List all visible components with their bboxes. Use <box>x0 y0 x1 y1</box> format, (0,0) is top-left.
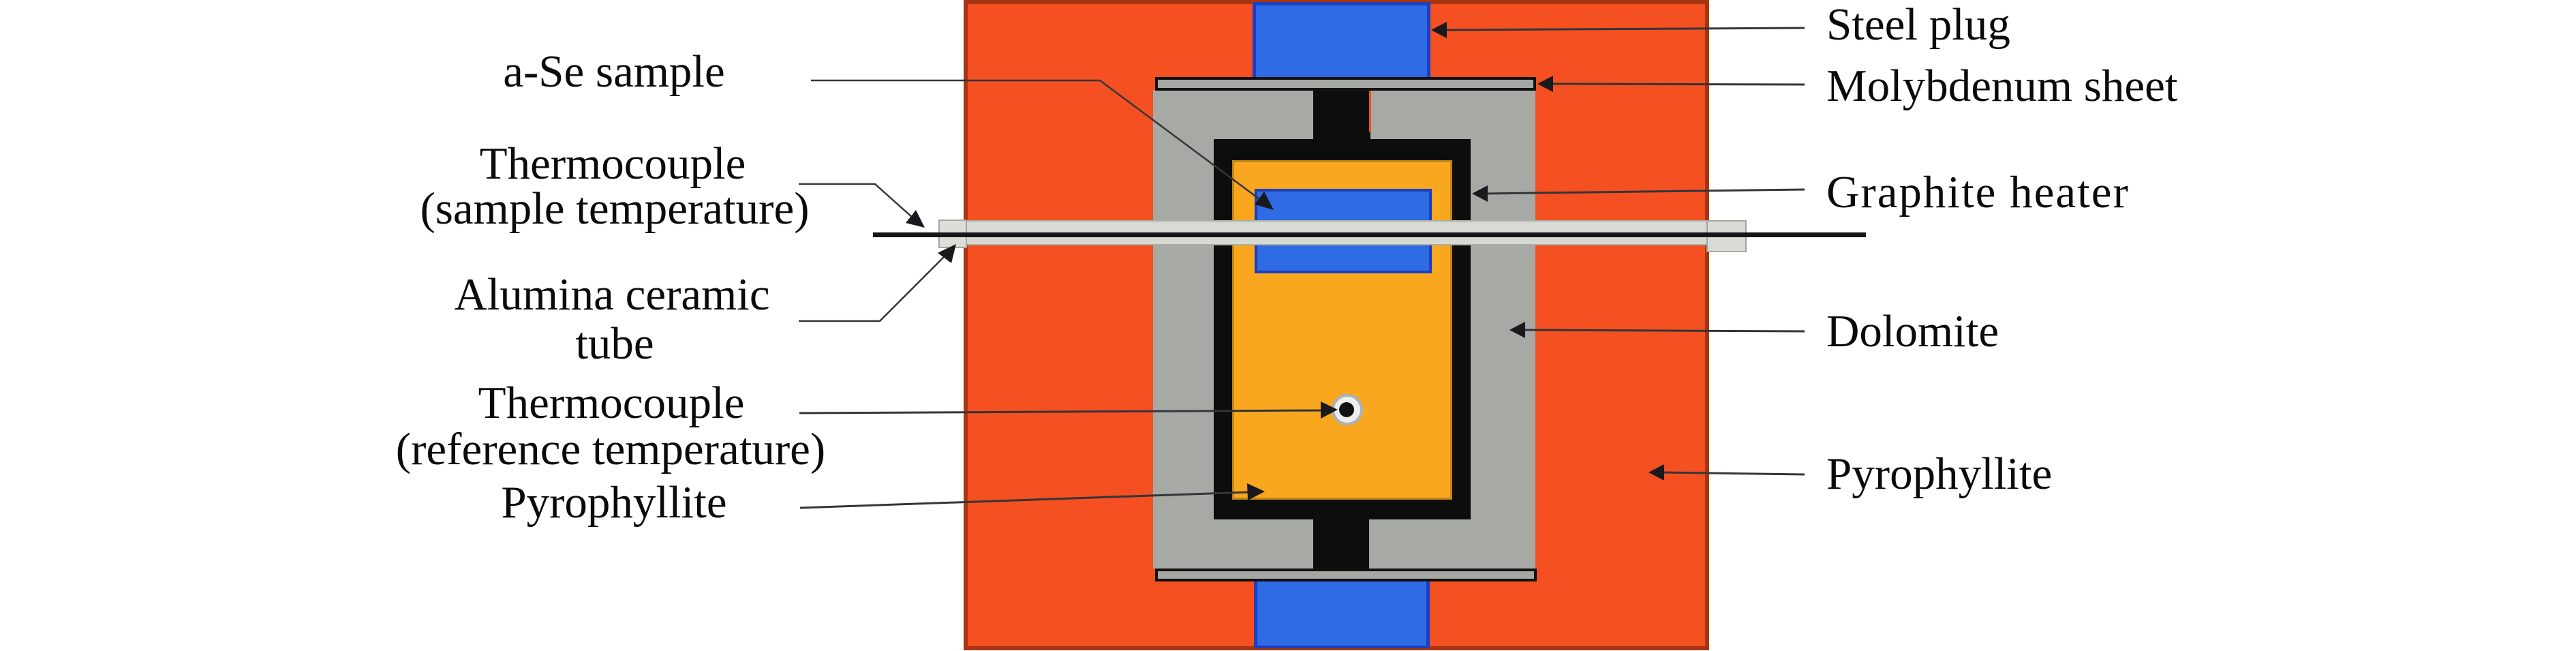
svg-text:Dolomite: Dolomite <box>1826 306 1999 357</box>
svg-text:(sample temperature): (sample temperature) <box>420 183 809 234</box>
svg-text:tube: tube <box>575 318 654 369</box>
svg-text:Pyrophyllite: Pyrophyllite <box>1826 449 2052 499</box>
svg-text:Graphite heater: Graphite heater <box>1826 167 2130 217</box>
svg-text:a-Se sample: a-Se sample <box>503 46 725 97</box>
svg-text:Steel plug: Steel plug <box>1826 0 2010 50</box>
svg-text:Alumina ceramic: Alumina ceramic <box>454 269 769 320</box>
svg-text:Thermocouple: Thermocouple <box>480 138 746 189</box>
svg-text:Pyrophyllite: Pyrophyllite <box>501 477 726 528</box>
svg-text:Thermocouple: Thermocouple <box>478 378 745 428</box>
svg-text:(reference temperature): (reference temperature) <box>396 424 825 474</box>
svg-text:Molybdenum sheet: Molybdenum sheet <box>1826 61 2178 111</box>
